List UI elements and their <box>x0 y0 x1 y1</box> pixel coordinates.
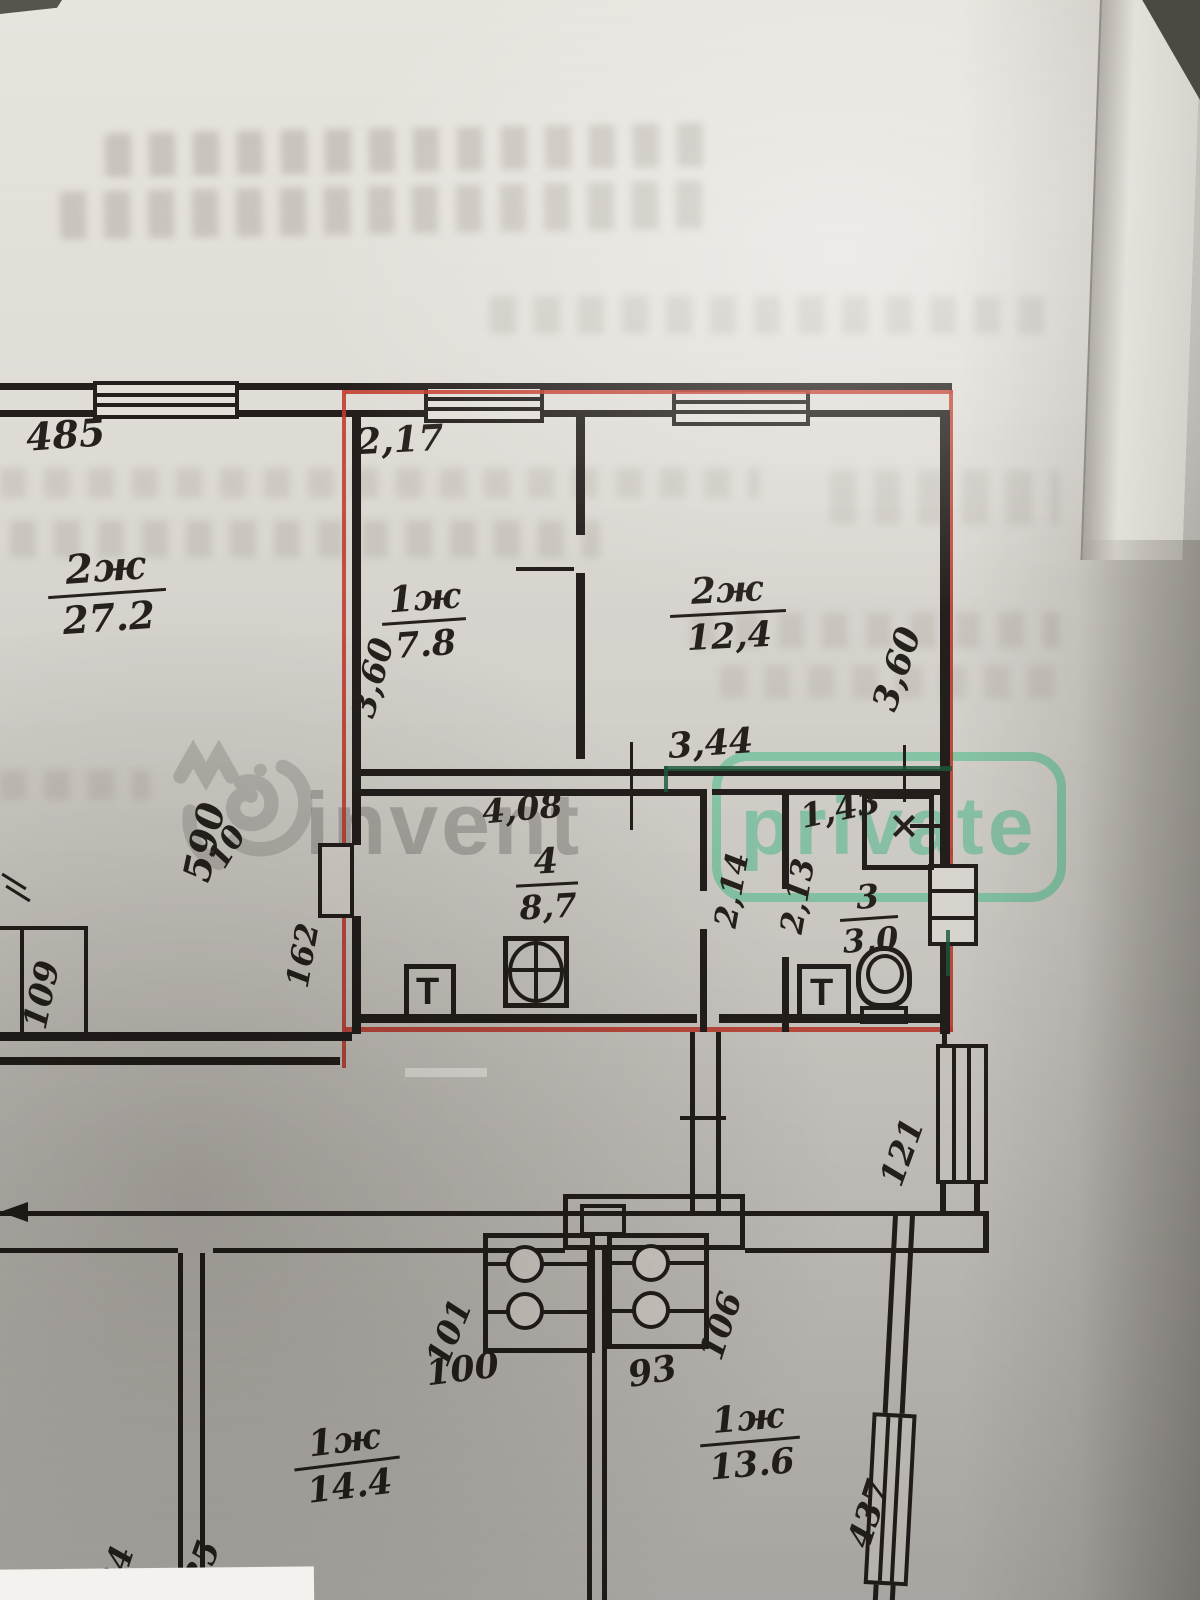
partition-mid-a <box>587 1250 592 1600</box>
bleed-through-text <box>60 180 721 240</box>
background-sliver-top-left <box>0 0 62 14</box>
room-area: 3,0 <box>840 918 900 958</box>
hatch-tick <box>5 885 30 902</box>
corridor-left-wall-upper <box>700 789 707 891</box>
apartment-left-wall-upper <box>352 410 361 845</box>
marker-stub-right <box>946 930 950 976</box>
door-threshold-tick <box>516 567 574 571</box>
whiteout-strip <box>405 1068 487 1077</box>
room-num: 2ж <box>45 544 166 599</box>
paper-bottom-left-strip <box>0 1566 314 1600</box>
room-area: 7.8 <box>382 620 469 665</box>
dim-162: 162 <box>283 921 325 990</box>
room-label-bathroom: 3 3,0 <box>837 878 900 958</box>
left-room-bottom-wall-2 <box>0 1057 340 1065</box>
ext-wall-corner <box>983 1211 989 1253</box>
right-room-wall-group <box>873 1215 953 1600</box>
paper-fold-shadow-lower <box>1078 540 1200 1600</box>
door-niche-left <box>318 843 354 918</box>
marker-stub-vertical <box>664 766 668 792</box>
partition-mid-b <box>602 1250 607 1600</box>
room-label-1zh-136: 1ж 13.6 <box>697 1396 804 1486</box>
stove-cross-v <box>534 938 538 1006</box>
marker-line-horizontal <box>664 766 952 771</box>
vestibule-circle <box>506 1292 544 1330</box>
room-label-kitchen: 4 8,7 <box>514 842 580 924</box>
room-area: 12,4 <box>670 612 788 657</box>
room-num: 4 <box>514 842 578 887</box>
paper-fold-right <box>1080 0 1200 560</box>
passage-wall-right <box>716 1032 721 1214</box>
porch-chimney <box>580 1204 626 1236</box>
passage-wall-left <box>690 1032 695 1214</box>
bleed-through-text <box>105 123 706 177</box>
vent-mark: × <box>888 806 920 844</box>
room-num: 2ж <box>668 569 786 618</box>
corridor-arrow <box>0 1202 28 1222</box>
dim-2-17: 2,17 <box>355 420 444 461</box>
room-label-2zh-27: 2ж 27.2 <box>45 544 169 641</box>
apartment-outline-top <box>345 390 953 394</box>
corridor-left-wall-lower <box>700 929 707 1032</box>
dim-121: 121 <box>874 1114 929 1190</box>
room-label-1zh-78: 1ж 7.8 <box>379 577 469 665</box>
room-num: 3 <box>837 878 898 922</box>
dim-93: 93 <box>625 1350 679 1393</box>
dim-4-08: 4,08 <box>481 789 564 829</box>
bleed-through-text <box>0 468 760 498</box>
dim-485: 485 <box>25 413 107 456</box>
apartment-right-wall-upper <box>940 410 950 866</box>
sink-symbol: T <box>810 972 833 1015</box>
room-area: 27.2 <box>48 591 169 641</box>
partition-434 <box>178 1253 183 1600</box>
vestibule-circle <box>632 1244 670 1282</box>
room-label-1zh-144: 1ж 14.4 <box>289 1416 404 1510</box>
corridor-wall-lower-a <box>0 1248 178 1253</box>
passage-tick <box>680 1116 726 1120</box>
room-area: 8,7 <box>516 884 580 924</box>
vestibule-circle <box>632 1291 670 1329</box>
window-top-left-room <box>93 381 239 419</box>
photographed-floor-plan-page: invent private × T T <box>0 0 1200 1600</box>
window-bathroom-right <box>928 864 978 946</box>
window-side-121 <box>936 1044 988 1184</box>
bleed-through-text <box>0 770 150 800</box>
room-label-2zh-124: 2ж 12,4 <box>668 569 788 657</box>
toilet-tank <box>860 1006 908 1024</box>
apartment-outline-left <box>342 390 346 1068</box>
corridor-wall-upper <box>0 1211 988 1216</box>
apartment-outline-bottom <box>345 1027 953 1032</box>
dim-3-44: 3,44 <box>667 723 754 764</box>
toilet-seat-circle <box>866 954 904 994</box>
room-num: 1ж <box>379 577 466 626</box>
partition-1zh-2zh-upper <box>576 410 585 535</box>
corridor-wall-lower-c <box>745 1248 988 1253</box>
partition-1zh-2zh-lower <box>576 573 585 759</box>
bathroom-left-wall-lower <box>782 957 789 1032</box>
room-area: 13.6 <box>700 1439 803 1487</box>
vestibule-circle <box>506 1245 544 1283</box>
bleed-through-text <box>490 296 1050 334</box>
sink-symbol: T <box>416 971 439 1014</box>
dim-100: 100 <box>424 1348 501 1392</box>
door-jamb-tick <box>630 742 633 830</box>
